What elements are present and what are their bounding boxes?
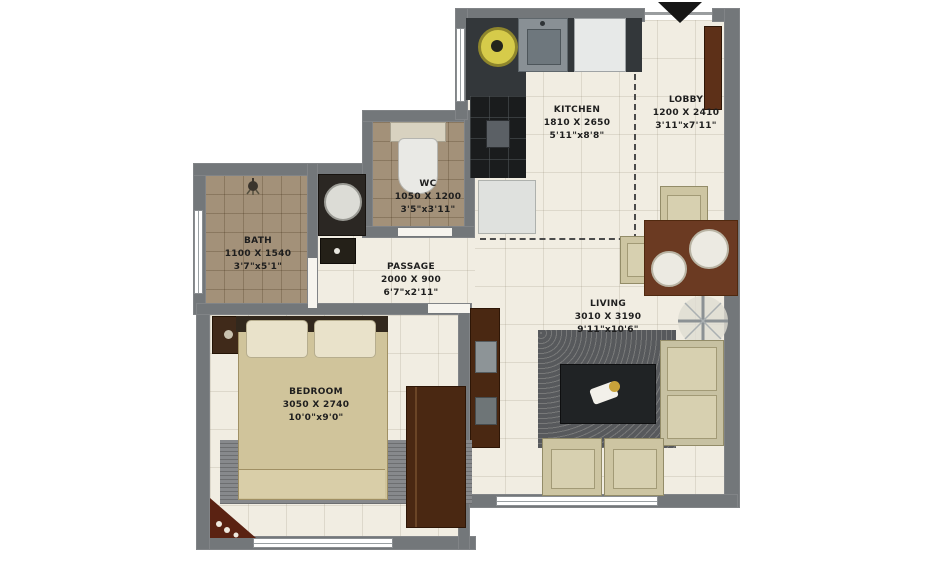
corner-shelf	[210, 498, 258, 538]
room-label-living: LIVING 3010 X 3190 9'11"x10'6"	[548, 298, 668, 337]
shower-icon	[240, 176, 266, 200]
plate	[651, 251, 687, 287]
sink-basin	[527, 29, 561, 65]
room-name: BEDROOM	[256, 386, 376, 399]
window-living	[496, 496, 658, 506]
room-name: PASSAGE	[351, 261, 471, 274]
room-name: KITCHEN	[517, 104, 637, 117]
hob-burner	[491, 40, 503, 52]
room-size-mm: 1810 X 2650	[517, 117, 637, 130]
armchair	[542, 438, 602, 496]
window-bedroom	[253, 538, 393, 548]
room-label-bath: BATH 1100 X 1540 3'7"x5'1"	[198, 235, 318, 274]
wash-basin-icon	[324, 183, 362, 221]
tv-shelf	[475, 397, 497, 425]
refrigerator	[574, 18, 626, 72]
armchair-cushion	[613, 449, 657, 489]
room-label-kitchen: KITCHEN 1810 X 2650 5'11"x8'8"	[517, 104, 637, 143]
room-size-mm: 3010 X 3190	[548, 311, 668, 324]
floor-plan: KITCHEN 1810 X 2650 5'11"x8'8" LOBBY 120…	[0, 0, 941, 570]
plate	[689, 229, 729, 269]
room-size-ft: 3'11"x7'11"	[626, 120, 746, 133]
bed-blanket-fold	[239, 469, 385, 498]
wardrobe-edge	[415, 387, 417, 527]
window-kitchen	[456, 28, 465, 102]
room-name: LOBBY	[626, 94, 746, 107]
coffee-table	[560, 364, 656, 424]
room-size-mm: 3050 X 2740	[256, 399, 376, 412]
sofa-cushion	[667, 347, 717, 391]
room-name: WC	[368, 178, 488, 191]
armchair-cushion	[551, 449, 595, 489]
wall-bedroom-left	[196, 303, 210, 550]
chair-cushion	[667, 195, 701, 221]
room-size-ft: 3'7"x5'1"	[198, 261, 318, 274]
dining-table	[644, 220, 738, 296]
room-label-lobby: LOBBY 1200 X 2410 3'11"x7'11"	[626, 94, 746, 133]
room-size-ft: 10'0"x9'0"	[256, 412, 376, 425]
room-label-wc: WC 1050 X 1200 3'5"x3'11"	[368, 178, 488, 217]
room-size-ft: 6'7"x2'11"	[351, 287, 471, 300]
tv-icon	[475, 341, 497, 373]
table-decor-gold	[609, 381, 620, 392]
nightstand-decor	[224, 330, 233, 339]
pillow	[246, 320, 308, 358]
wardrobe	[406, 386, 466, 528]
room-name: BATH	[198, 235, 318, 248]
vanity-counter	[318, 174, 366, 236]
room-size-ft: 3'5"x3'11"	[368, 204, 488, 217]
room-size-mm: 2000 X 900	[351, 274, 471, 287]
room-label-bedroom: BEDROOM 3050 X 2740 10'0"x9'0"	[256, 386, 376, 425]
armchair	[604, 438, 664, 496]
kitchen-sink-icon	[518, 18, 568, 72]
chair-cushion	[627, 243, 645, 277]
sink-faucet	[540, 21, 545, 26]
room-size-mm: 1200 X 2410	[626, 107, 746, 120]
room-name: LIVING	[548, 298, 668, 311]
cabinet-knob	[334, 248, 340, 254]
stove-appliance	[486, 120, 510, 148]
sofa-two-seater	[660, 340, 724, 446]
room-size-ft: 5'11"x8'8"	[517, 130, 637, 143]
sofa-cushion	[667, 395, 717, 439]
room-size-mm: 1050 X 1200	[368, 191, 488, 204]
kitchen-counter-side	[466, 66, 526, 100]
room-size-mm: 1100 X 1540	[198, 248, 318, 261]
room-size-ft: 9'11"x10'6"	[548, 324, 668, 337]
entry-arrow-icon	[656, 0, 704, 24]
room-label-passage: PASSAGE 2000 X 900 6'7"x2'11"	[351, 261, 471, 300]
door-wc	[398, 228, 452, 236]
tv-unit	[470, 308, 500, 448]
door-bedroom	[428, 304, 470, 313]
pillow	[314, 320, 376, 358]
gas-hob-icon	[478, 27, 518, 67]
